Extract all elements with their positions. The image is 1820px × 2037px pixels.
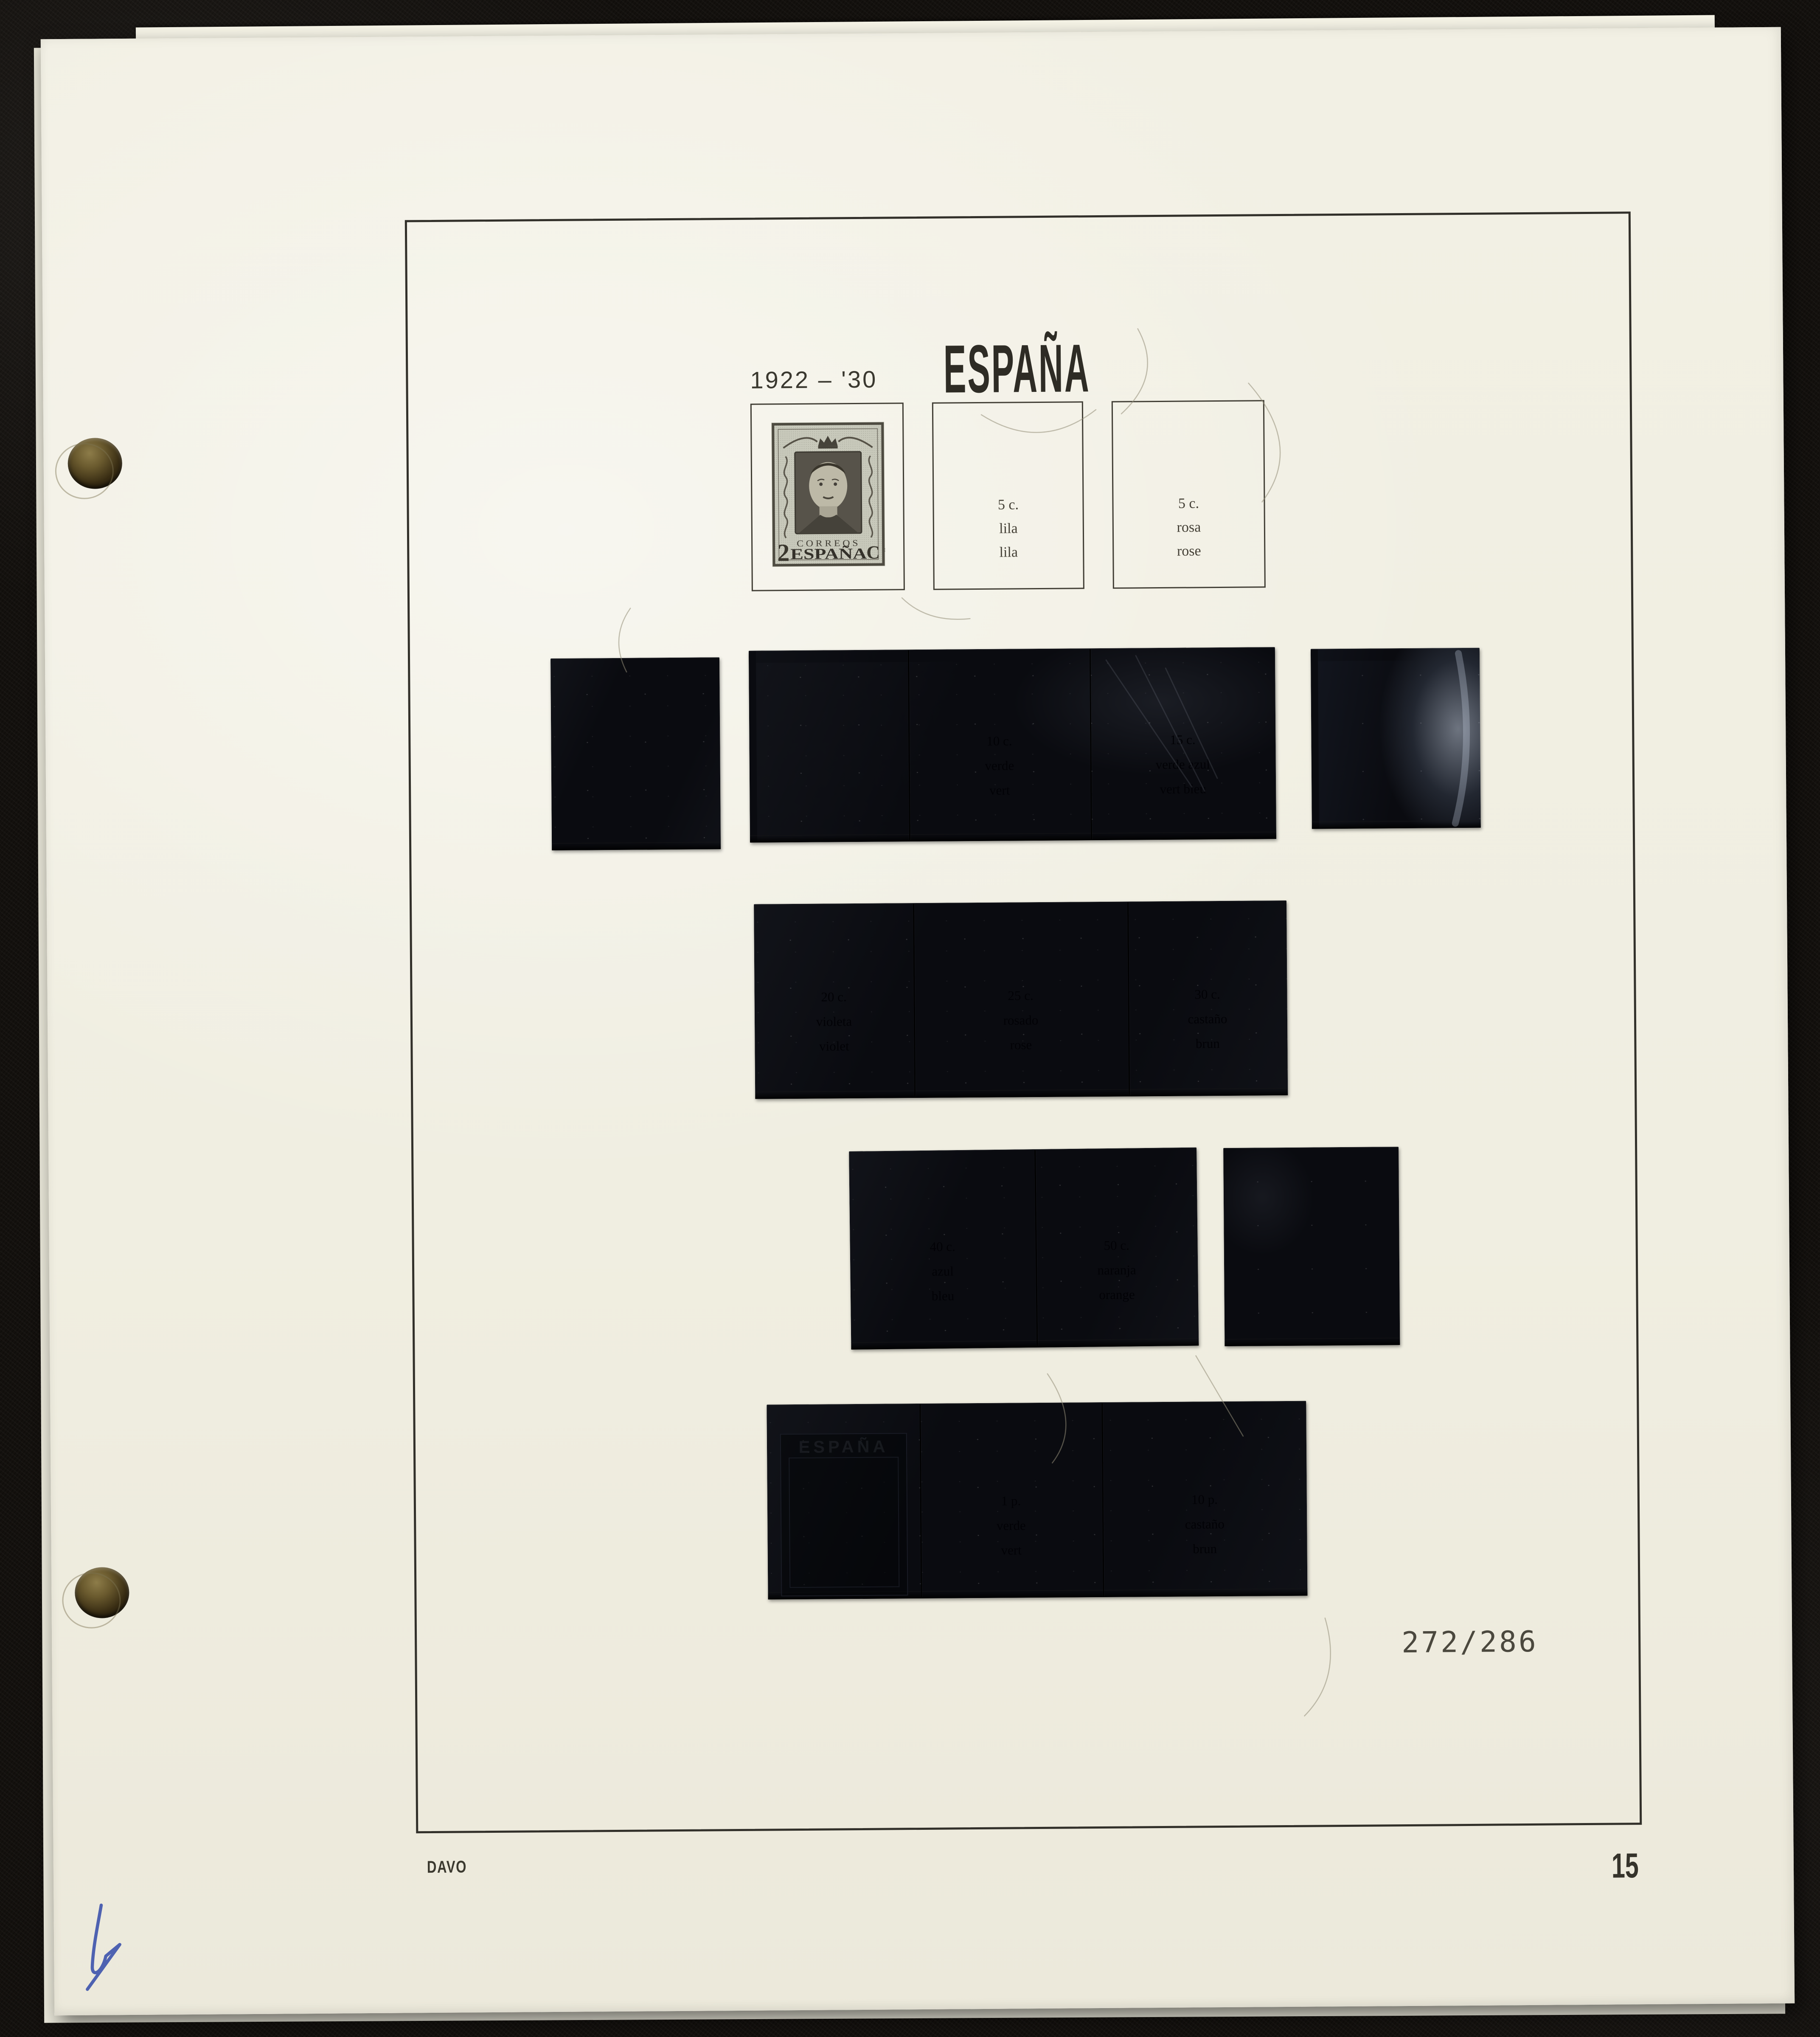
backdrop-fabric: ESPAÑA 1922 – '30 xyxy=(0,0,1820,2037)
scratch-marks-overlay xyxy=(41,27,1795,2016)
album-page: ESPAÑA 1922 – '30 xyxy=(41,27,1795,2016)
